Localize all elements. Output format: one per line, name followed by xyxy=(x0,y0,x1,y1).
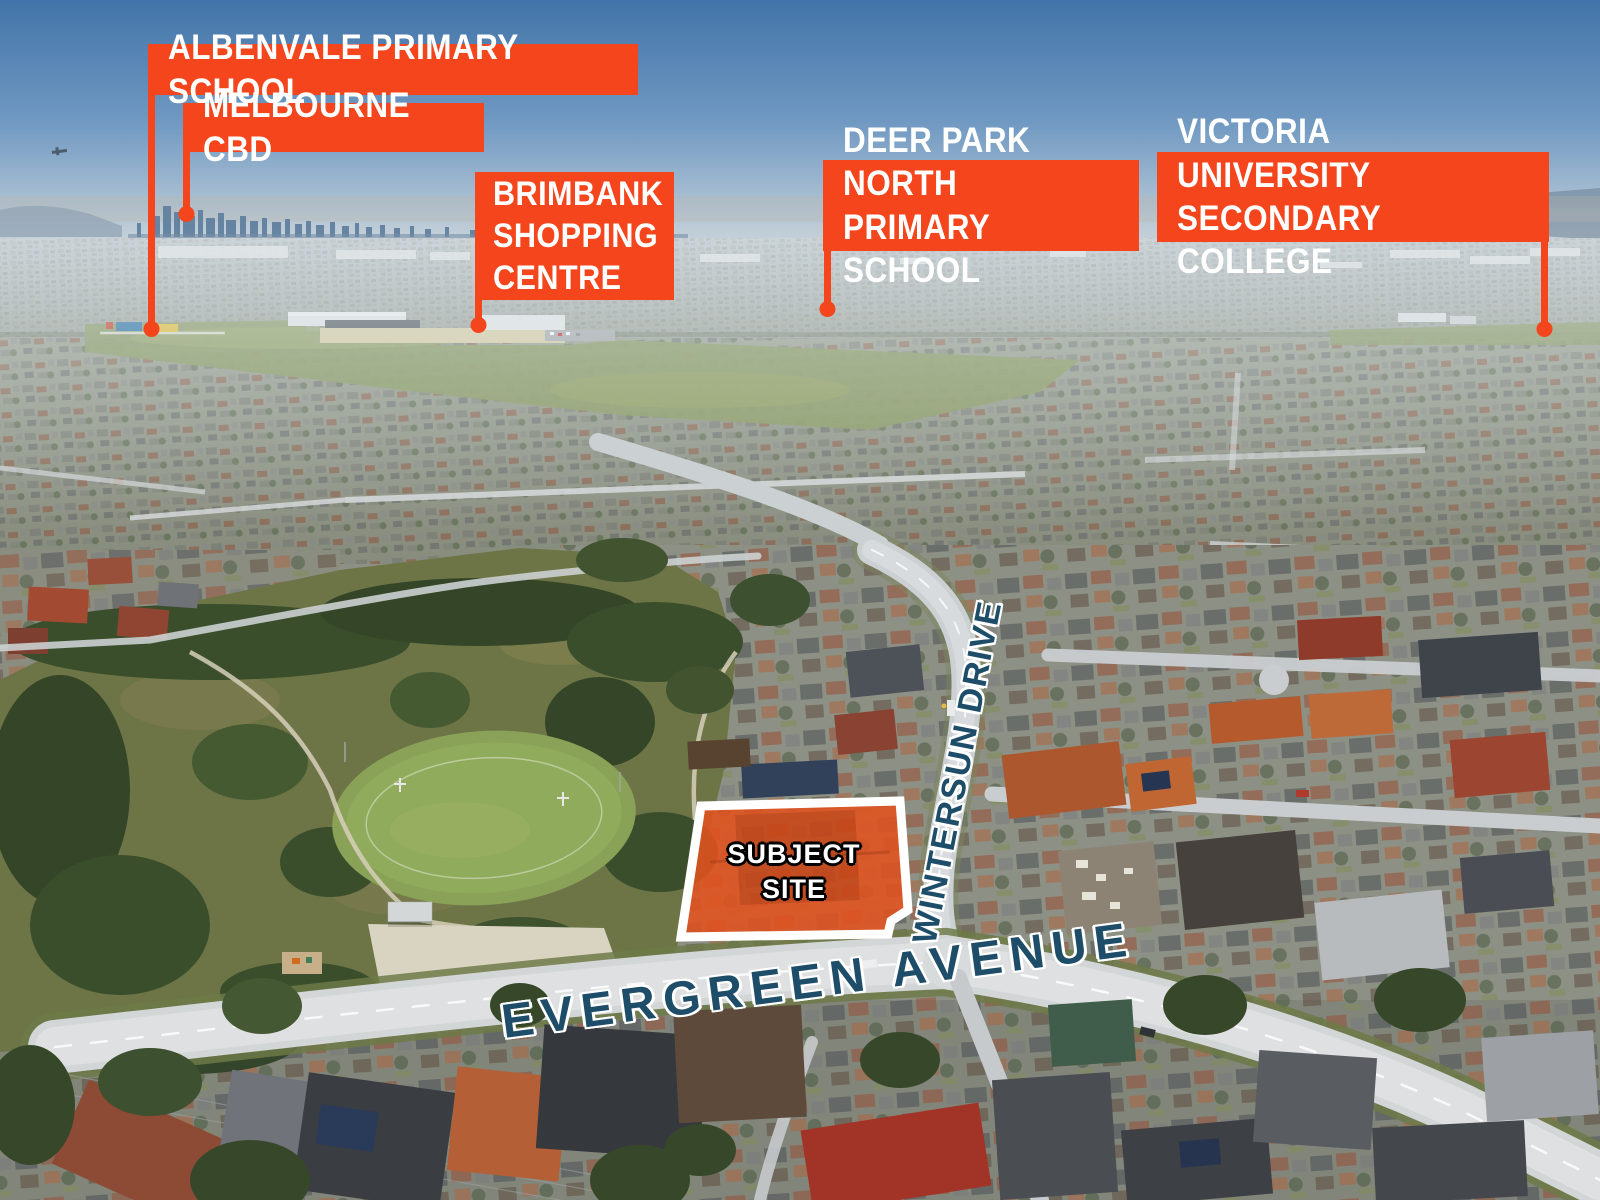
playground xyxy=(282,952,322,974)
leader-dot-victoria-uni xyxy=(1537,321,1553,337)
streetlight-glint-2 xyxy=(942,704,947,709)
leader-dot-albenvale xyxy=(144,321,160,337)
leader-dot-brimbank xyxy=(471,317,487,333)
subject-site-label: SUBJECT SITE xyxy=(727,837,860,907)
callout-victoria-uni-label: VICTORIA UNIVERSITY SECONDARY COLLEGE xyxy=(1177,110,1512,284)
callout-brimbank-label: BRIMBANK SHOPPING CENTRE xyxy=(493,173,663,299)
callout-victoria-university-secondary-college: VICTORIA UNIVERSITY SECONDARY COLLEGE xyxy=(1157,152,1549,242)
leader-dot-deer-park xyxy=(820,301,836,317)
callout-melbourne-cbd-label: MELBOURNE CBD xyxy=(203,84,456,171)
leader-dot-melbourne-cbd xyxy=(179,206,195,222)
callout-deer-park-label: DEER PARK NORTH PRIMARY SCHOOL xyxy=(843,119,1109,293)
callout-deer-park-north-primary-school: DEER PARK NORTH PRIMARY SCHOOL xyxy=(823,160,1139,251)
red-car xyxy=(1296,790,1309,797)
callout-brimbank-shopping-centre: BRIMBANK SHOPPING CENTRE xyxy=(475,172,674,300)
callout-melbourne-cbd: MELBOURNE CBD xyxy=(183,103,484,152)
aerial-photo: ALBENVALE PRIMARY SCHOOL MELBOURNE CBD B… xyxy=(0,0,1600,1200)
park-pavilion xyxy=(388,902,432,922)
